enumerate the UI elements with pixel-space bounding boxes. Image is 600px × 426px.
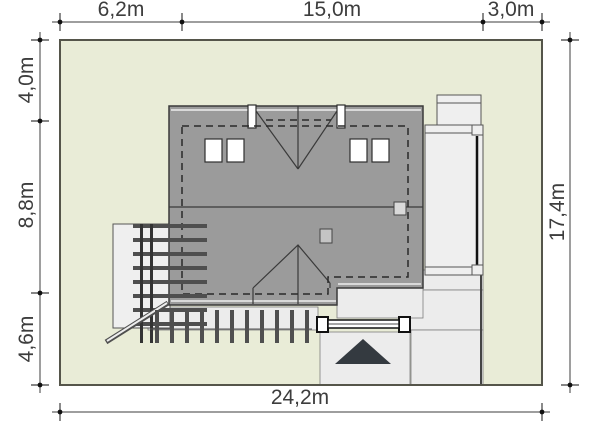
site-plan-page: 6,2m 15,0m 3,0m 4,0m 8,8m 4,6m 17,4m 24,…	[0, 0, 600, 426]
skylight	[227, 139, 244, 162]
dim-label-top-1: 6,2m	[98, 0, 145, 21]
pergola-beam	[133, 224, 207, 228]
slat	[290, 310, 294, 343]
entrance-forecourt	[337, 288, 423, 318]
slat	[305, 310, 309, 343]
paving-panel	[411, 330, 483, 385]
slat	[215, 310, 219, 343]
pergola-beam	[133, 280, 207, 284]
slat	[155, 310, 159, 343]
ridge-vent	[394, 202, 406, 215]
dim-label-left-2: 8,8m	[15, 182, 38, 229]
slat	[245, 310, 249, 343]
roof-vent	[320, 229, 332, 243]
pergola-beam	[133, 238, 207, 242]
dim-label-right-1: 17,4m	[546, 183, 569, 241]
wing-corner-post	[472, 125, 483, 135]
skylight	[372, 139, 389, 162]
dim-label-bottom-1: 24,2m	[271, 386, 329, 409]
pergola-post	[150, 224, 153, 343]
dimension-right: 17,4m	[546, 32, 579, 393]
dim-label-top-2: 15,0m	[303, 0, 361, 21]
dimension-top: 6,2m 15,0m 3,0m	[52, 0, 550, 31]
slat	[260, 310, 264, 343]
slat	[200, 310, 204, 343]
dimension-bottom: 24,2m	[52, 386, 550, 421]
dormer-side-wall	[337, 105, 345, 128]
chimney	[437, 95, 481, 127]
site-plan-drawing: 6,2m 15,0m 3,0m 4,0m 8,8m 4,6m 17,4m 24,…	[0, 0, 600, 426]
pergola-beam	[133, 252, 207, 256]
pergola-beam	[133, 294, 207, 298]
pergola-beam	[133, 266, 207, 270]
skylight	[205, 139, 222, 162]
dimension-left: 4,0m 8,8m 4,6m	[15, 32, 49, 393]
slat	[185, 310, 189, 343]
gate-post	[399, 317, 410, 332]
slat	[170, 310, 174, 343]
slat	[230, 310, 234, 343]
dim-label-top-3: 3,0m	[488, 0, 535, 21]
gate-post	[317, 317, 328, 332]
main-roof	[169, 105, 423, 305]
dim-label-left-3: 4,6m	[15, 316, 38, 363]
skylight	[350, 139, 367, 162]
dormer-side-wall	[248, 105, 256, 128]
pergola-post	[140, 224, 143, 343]
wing-corner-post	[472, 265, 483, 275]
garage-flat-roof	[425, 125, 483, 275]
dim-label-left-1: 4,0m	[15, 57, 38, 104]
slat	[275, 310, 279, 343]
roof-outline	[169, 106, 423, 305]
